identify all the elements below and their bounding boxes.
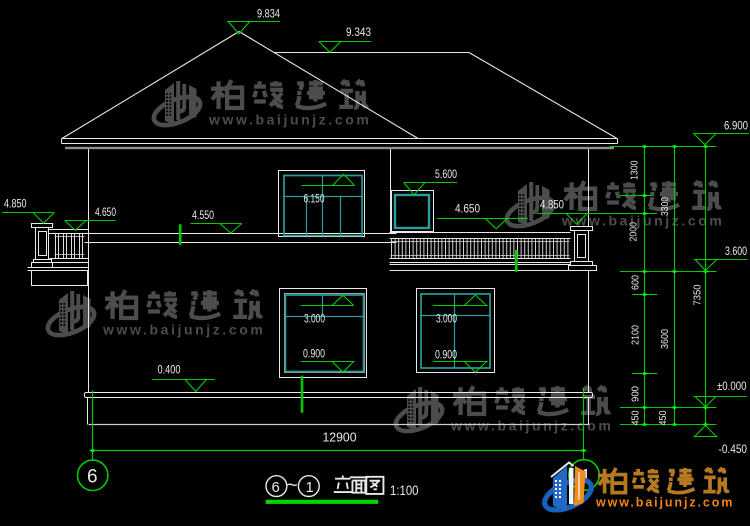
- svg-text:2100: 2100: [630, 325, 642, 345]
- svg-text:7350: 7350: [692, 284, 704, 305]
- svg-text:4.850: 4.850: [4, 197, 27, 211]
- svg-text:-0.450: -0.450: [719, 442, 748, 456]
- svg-text:4.650: 4.650: [95, 205, 116, 219]
- svg-text:±0.000: ±0.000: [717, 379, 747, 393]
- svg-text:0.900: 0.900: [435, 347, 457, 361]
- svg-text:www.baijunjz.com: www.baijunjz.com: [595, 496, 734, 510]
- svg-text:1300: 1300: [629, 160, 641, 180]
- svg-text:1: 1: [306, 479, 314, 496]
- svg-text:4.850: 4.850: [540, 198, 564, 212]
- svg-text:6.900: 6.900: [724, 119, 748, 133]
- svg-text:3300: 3300: [659, 197, 671, 216]
- svg-text:2000: 2000: [628, 222, 640, 242]
- svg-text:~: ~: [287, 476, 298, 497]
- svg-text:900: 900: [630, 386, 642, 402]
- svg-text:1:100: 1:100: [390, 482, 419, 498]
- svg-text:0.900: 0.900: [303, 346, 325, 360]
- svg-text:600: 600: [630, 275, 642, 290]
- svg-text:4.650: 4.650: [455, 202, 480, 216]
- svg-text:0.400: 0.400: [158, 362, 181, 376]
- svg-text:3.000: 3.000: [304, 311, 325, 325]
- svg-text:6: 6: [272, 479, 280, 496]
- svg-text:450: 450: [630, 410, 642, 425]
- svg-text:6: 6: [87, 467, 98, 488]
- svg-text:12900: 12900: [323, 431, 357, 445]
- svg-text:9.343: 9.343: [346, 25, 371, 39]
- svg-text:450: 450: [657, 410, 669, 425]
- svg-text:5.600: 5.600: [435, 167, 457, 181]
- svg-text:3.000: 3.000: [436, 311, 457, 325]
- svg-text:4.550: 4.550: [192, 208, 214, 222]
- svg-text:3600: 3600: [659, 329, 671, 349]
- svg-text:9.834: 9.834: [257, 6, 280, 20]
- svg-text:3.600: 3.600: [725, 244, 747, 258]
- svg-text:6.150: 6.150: [304, 191, 325, 205]
